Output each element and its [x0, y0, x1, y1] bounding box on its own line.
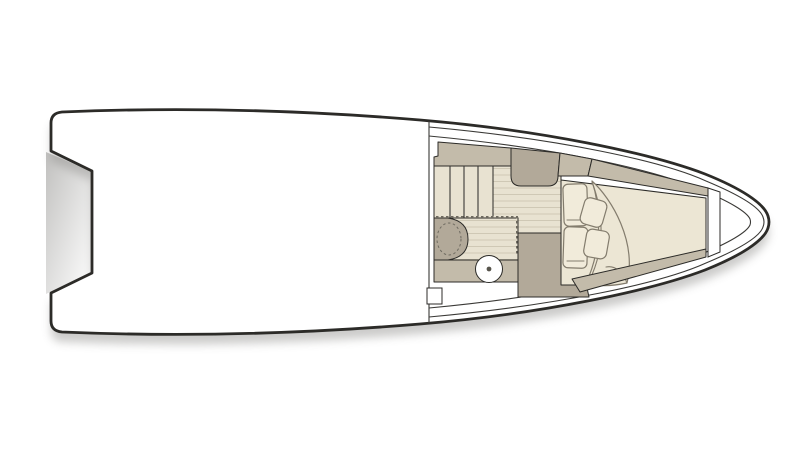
companionway-steps: Companionway steps [434, 166, 493, 218]
swim-platform-recess: Stern transom recess / swim platform [46, 152, 92, 294]
washbasin-unit: Washbasin unit [434, 218, 468, 260]
galley-module: Galley module [511, 148, 560, 186]
floorplan-drawing: Motor boat floor plan (top view, bow to … [0, 0, 800, 450]
toilet-drain-dot [487, 267, 492, 272]
boat-floorplan: Motor boat floor plan (top view, bow to … [0, 0, 800, 450]
pillows: Pillow (port) Pillow (starboard) [563, 184, 588, 269]
bow-bulkhead: Bow anchor-locker bulkhead [708, 188, 720, 257]
toilet: Toilet [476, 256, 503, 283]
cushion-2: Loose cushion [583, 228, 611, 260]
bulkhead-step-notch [427, 288, 442, 304]
head-compartment: Head compartment floor Washbasin unit Va… [434, 217, 518, 283]
